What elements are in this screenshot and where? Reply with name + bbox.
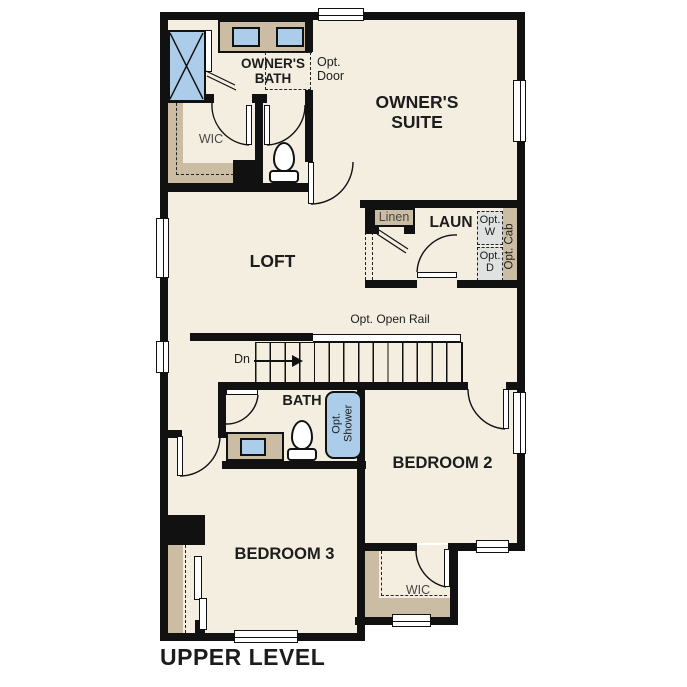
bath-sink (240, 438, 266, 456)
toilet-room-door-leaf (264, 105, 270, 145)
label-opt-door: Opt. Door (317, 55, 353, 83)
wall-bath-bottom (222, 461, 366, 469)
laundry-dashed-wall (365, 232, 373, 280)
wall-linen-stub-right (404, 226, 415, 234)
vanity-sink-2 (276, 27, 304, 47)
wall-bedroom2-bottom-left (357, 543, 417, 551)
laundry-door-leaf (417, 272, 457, 278)
label-opt-shower: Opt. Shower (331, 396, 356, 450)
owners-toilet-tank (269, 170, 299, 183)
label-owners-wic: WIC (186, 132, 236, 146)
wall-wic2-right (450, 543, 458, 625)
owners-toilet-bowl (273, 142, 295, 172)
bath-toilet-tank (287, 448, 317, 461)
label-opt-cab: Opt. Cab (504, 221, 517, 271)
owners-shower (168, 30, 206, 102)
bedroom3-door-leaf (177, 436, 183, 476)
wall-suite-laundry (360, 200, 525, 208)
open-rail (313, 334, 461, 342)
bath-door-leaf (226, 389, 258, 395)
label-opt-open-rail: Opt. Open Rail (330, 313, 450, 326)
bedroom3-closet-bypass-door-1 (194, 556, 202, 600)
wall-bedroom3-closet-chunk (168, 515, 205, 545)
bedroom3-closet-dashed-line (185, 545, 187, 633)
label-bath: BATH (272, 393, 332, 409)
label-opt-dryer: Opt. D (477, 250, 503, 275)
stair-direction-arrow (292, 355, 303, 367)
label-bedroom2: BEDROOM 2 (370, 454, 515, 472)
wall-toiletroom-right (305, 90, 313, 162)
plan-title: UPPER LEVEL (160, 645, 390, 671)
shower-glass-panel (205, 30, 212, 72)
label-laundry: LAUN (422, 214, 480, 231)
wic2-door-leaf (444, 549, 450, 587)
label-wic2: WIC (393, 583, 443, 597)
label-bedroom3: BEDROOM 3 (212, 545, 357, 563)
label-down: Dn (229, 352, 255, 366)
wall-stair-top (190, 333, 313, 341)
window-bedroom2-bottom (476, 540, 509, 553)
window-left-loft-1 (156, 218, 169, 278)
wall-bath-left (218, 390, 226, 438)
wall-laundry-bottom-right (457, 280, 517, 288)
window-bedroom3 (234, 630, 298, 643)
wall-linen-stub-left (365, 226, 379, 234)
bedroom3-closet-shelf (168, 545, 183, 633)
owners-wic-door-leaf (246, 105, 252, 145)
label-owners-bath: OWNER'S BATH (224, 56, 322, 86)
window-bedroom2-right (513, 392, 526, 454)
label-owners-suite: OWNER'S SUITE (357, 93, 477, 132)
window-wic2 (392, 614, 431, 627)
label-loft: LOFT (240, 252, 305, 272)
bedroom3-closet-bypass-door-2 (199, 598, 207, 630)
window-left-loft-2 (156, 341, 169, 373)
wall-bathblock-bottom (160, 183, 313, 192)
vanity-sink-1 (232, 27, 260, 47)
wall-wic-step (233, 160, 263, 184)
stair-direction-line (254, 360, 292, 362)
bedroom2-door-leaf (503, 389, 509, 429)
label-linen: Linen (373, 210, 415, 224)
floor-plan: OWNER'S BATH Opt. Door OWNER'S SUITE WIC… (0, 0, 687, 687)
wall-laundry-bottom-left (365, 280, 417, 288)
bath-toilet-bowl (291, 420, 313, 450)
wall-left (160, 12, 168, 641)
label-opt-washer: Opt. W (477, 214, 503, 239)
window-top (318, 8, 364, 21)
owners-suite-door-leaf (308, 162, 314, 204)
stair-treads (255, 342, 463, 382)
wall-toiletroom-top (252, 94, 267, 103)
window-owners-suite (513, 80, 526, 142)
wall-bath-suite-divider (305, 12, 313, 52)
